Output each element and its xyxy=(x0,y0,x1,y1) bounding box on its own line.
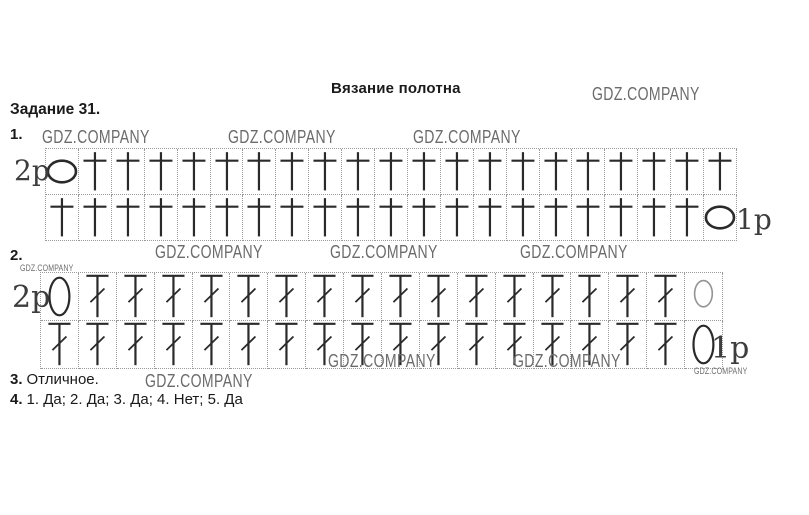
diagram1-row-label-1p: 1р xyxy=(736,203,772,236)
sc-icon xyxy=(507,149,539,194)
sc-icon xyxy=(145,149,177,194)
document-page: Вязание полотна GDZ.COMPANY GDZ.COMPANY … xyxy=(0,0,809,515)
stitch-sc xyxy=(112,149,145,195)
sc-icon xyxy=(178,195,210,240)
stitch-dc xyxy=(79,273,117,321)
dc-icon xyxy=(193,321,230,368)
stitch-dc xyxy=(268,321,306,369)
diagram2-row-label-1p: 1р xyxy=(711,331,749,366)
sc-icon xyxy=(211,195,243,240)
sc-icon xyxy=(342,195,374,240)
sc-icon xyxy=(243,149,275,194)
stitch-chain xyxy=(704,195,737,241)
answer-4: 4.1. Да; 2. Да; 3. Да; 4. Нет; 5. Да xyxy=(10,391,243,408)
stitch-sc xyxy=(441,149,474,195)
sc-icon xyxy=(671,149,703,194)
dc-icon xyxy=(534,273,571,320)
sc-icon xyxy=(46,195,78,240)
chain-icon xyxy=(704,195,736,240)
dc-icon xyxy=(155,321,192,368)
stitch-sc xyxy=(540,149,573,195)
stitch-dc xyxy=(647,321,685,369)
stitch-sc xyxy=(507,149,540,195)
sc-icon xyxy=(441,195,473,240)
watermark: GDZ.COMPANY xyxy=(413,127,521,148)
stitch-dc xyxy=(79,321,117,369)
sc-icon xyxy=(572,195,604,240)
stitch-sc xyxy=(211,149,244,195)
dc-icon xyxy=(268,321,305,368)
sc-icon xyxy=(441,149,473,194)
sc-icon xyxy=(605,149,637,194)
stitch-dc xyxy=(193,321,231,369)
sc-icon xyxy=(112,149,144,194)
stitch-dc xyxy=(230,273,268,321)
sc-icon xyxy=(605,195,637,240)
stitch-dc xyxy=(458,273,496,321)
stitch-sc xyxy=(572,149,605,195)
stitch-sc xyxy=(145,149,178,195)
stitch-dc xyxy=(193,273,231,321)
dc-icon xyxy=(79,321,116,368)
watermark: GDZ.COMPANY xyxy=(42,127,150,148)
dc-icon xyxy=(117,273,154,320)
stitch-dc xyxy=(155,321,193,369)
dc-icon xyxy=(193,273,230,320)
sc-icon xyxy=(638,195,670,240)
stitch-sc xyxy=(211,195,244,241)
sc-icon xyxy=(276,149,308,194)
stitch-sc xyxy=(79,149,112,195)
dc-icon xyxy=(647,321,684,368)
stitch-dc xyxy=(647,273,685,321)
stitch-sc xyxy=(507,195,540,241)
stitch-sc xyxy=(704,149,737,195)
sc-icon xyxy=(375,195,407,240)
stitch-dc xyxy=(609,273,647,321)
stitch-sc xyxy=(342,149,375,195)
stitch-sc xyxy=(342,195,375,241)
answer-3-text: Отличное. xyxy=(27,371,99,388)
sc-icon xyxy=(276,195,308,240)
dc-icon xyxy=(647,273,684,320)
item-4-number: 4. xyxy=(10,391,23,408)
stitch-sc xyxy=(474,195,507,241)
watermark: GDZ.COMPANY xyxy=(20,263,73,273)
stitch-dc xyxy=(534,273,572,321)
answer-4-text: 1. Да; 2. Да; 3. Да; 4. Нет; 5. Да xyxy=(27,391,243,408)
stitch-sc xyxy=(408,149,441,195)
stitch-dc xyxy=(117,321,155,369)
stitch-dc xyxy=(117,273,155,321)
stitch-sc xyxy=(309,149,342,195)
dc-icon xyxy=(268,273,305,320)
page-title: Вязание полотна xyxy=(331,80,461,97)
stitch-sc xyxy=(112,195,145,241)
stitch-dc xyxy=(496,273,534,321)
watermark: GDZ.COMPANY xyxy=(328,351,436,372)
stitch-sc xyxy=(572,195,605,241)
dc-icon xyxy=(79,273,116,320)
stitch-dc xyxy=(155,273,193,321)
diagram2-row-label-2p: 2р xyxy=(12,280,50,315)
item-1-number: 1. xyxy=(10,126,23,143)
dc-icon xyxy=(458,321,495,368)
sc-icon xyxy=(79,195,111,240)
sc-icon xyxy=(540,195,572,240)
sc-icon xyxy=(375,149,407,194)
stitch-sc xyxy=(441,195,474,241)
dc-icon xyxy=(571,273,608,320)
sc-icon xyxy=(507,195,539,240)
watermark: GDZ.COMPANY xyxy=(228,127,336,148)
stitch-sc xyxy=(243,149,276,195)
stitch-dc xyxy=(571,273,609,321)
sc-icon xyxy=(309,195,341,240)
watermark: GDZ.COMPANY xyxy=(694,366,747,376)
stitch-dc xyxy=(382,273,420,321)
dc-icon xyxy=(458,273,495,320)
sc-icon xyxy=(474,195,506,240)
crochet-diagram-1 xyxy=(45,148,737,241)
diagram1-row-label-2p: 2р xyxy=(14,154,50,187)
stitch-dc xyxy=(268,273,306,321)
stitch-sc xyxy=(276,195,309,241)
item-2-number: 2. xyxy=(10,247,23,264)
stitch-sc xyxy=(671,149,704,195)
dc-icon xyxy=(496,273,533,320)
sc-icon xyxy=(408,149,440,194)
sc-icon xyxy=(671,195,703,240)
sc-icon xyxy=(112,195,144,240)
watermark: GDZ.COMPANY xyxy=(155,242,263,263)
dc-icon xyxy=(344,273,381,320)
sc-icon xyxy=(309,149,341,194)
stitch-sc xyxy=(243,195,276,241)
watermark: GDZ.COMPANY xyxy=(513,351,621,372)
dc-icon xyxy=(155,273,192,320)
stitch-chain xyxy=(46,149,79,195)
dc-icon xyxy=(117,321,154,368)
dc-icon xyxy=(420,273,457,320)
stitch-sc xyxy=(145,195,178,241)
stitch-dc xyxy=(41,321,79,369)
chain-tall-light-icon xyxy=(685,273,722,320)
dc-icon xyxy=(382,273,419,320)
stitch-sc xyxy=(474,149,507,195)
sc-icon xyxy=(474,149,506,194)
stitch-sc xyxy=(605,149,638,195)
watermark: GDZ.COMPANY xyxy=(145,371,253,392)
stitch-chain-tall-light xyxy=(685,273,723,321)
dc-icon xyxy=(306,273,343,320)
stitch-sc xyxy=(375,149,408,195)
sc-icon xyxy=(408,195,440,240)
stitch-sc xyxy=(276,149,309,195)
stitch-sc xyxy=(46,195,79,241)
stitch-sc xyxy=(408,195,441,241)
stitch-sc xyxy=(178,195,211,241)
sc-icon xyxy=(704,149,736,194)
sc-icon xyxy=(79,149,111,194)
stitch-sc xyxy=(605,195,638,241)
sc-icon xyxy=(243,195,275,240)
stitch-dc xyxy=(344,273,382,321)
stitch-sc xyxy=(540,195,573,241)
dc-icon xyxy=(230,321,267,368)
watermark: GDZ.COMPANY xyxy=(592,84,700,105)
stitch-dc xyxy=(306,273,344,321)
stitch-dc xyxy=(230,321,268,369)
dc-icon xyxy=(609,273,646,320)
sc-icon xyxy=(178,149,210,194)
sc-icon xyxy=(638,149,670,194)
dc-icon xyxy=(230,273,267,320)
sc-icon xyxy=(145,195,177,240)
sc-icon xyxy=(540,149,572,194)
stitch-sc xyxy=(178,149,211,195)
item-3-number: 3. xyxy=(10,371,23,388)
stitch-dc xyxy=(458,321,496,369)
sc-icon xyxy=(211,149,243,194)
sc-icon xyxy=(572,149,604,194)
stitch-sc xyxy=(671,195,704,241)
stitch-dc xyxy=(420,273,458,321)
stitch-sc xyxy=(79,195,112,241)
chain-icon xyxy=(46,149,78,194)
stitch-sc xyxy=(375,195,408,241)
sc-icon xyxy=(342,149,374,194)
stitch-sc xyxy=(309,195,342,241)
task-heading: Задание 31. xyxy=(10,101,100,119)
answer-3: 3.Отличное. xyxy=(10,371,99,388)
dc-icon xyxy=(41,321,78,368)
stitch-sc xyxy=(638,195,671,241)
stitch-sc xyxy=(638,149,671,195)
watermark: GDZ.COMPANY xyxy=(520,242,628,263)
watermark: GDZ.COMPANY xyxy=(330,242,438,263)
